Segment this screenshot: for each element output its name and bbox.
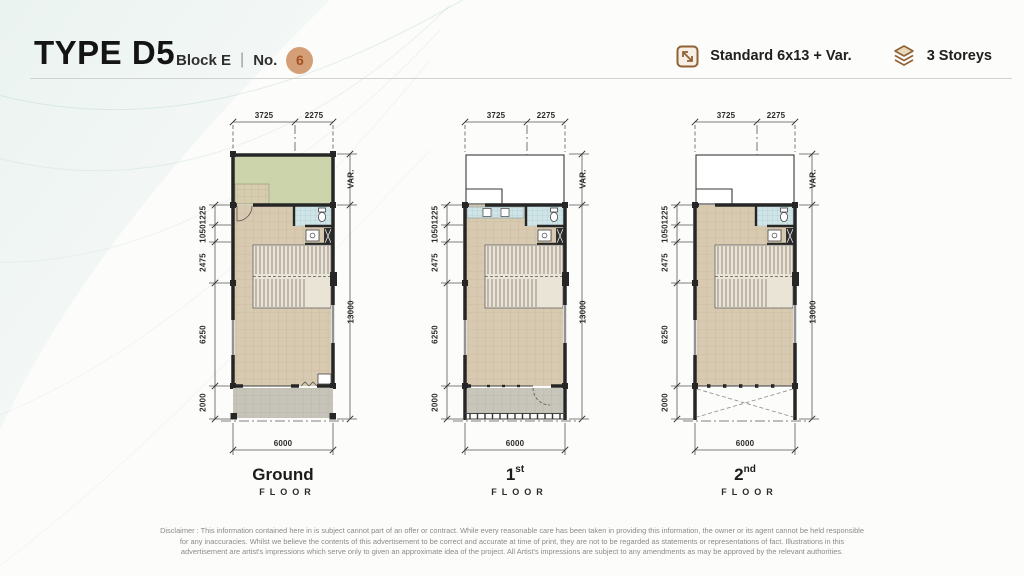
dim-left-1: 1050 (431, 224, 440, 243)
plan-second: 37252275VAR.1300012251050247562502000600… (657, 105, 887, 517)
header-specs: Standard 6x13 + Var. 3 Storeys (676, 44, 992, 68)
dim-bottom: 6000 (506, 439, 525, 448)
floor-label-ground: Ground (195, 465, 371, 485)
dim-right-total: 13000 (347, 300, 356, 324)
dim-var: VAR. (347, 169, 356, 188)
floor-word-second: FLOOR (657, 487, 837, 497)
floor-label-first: 1st (427, 465, 603, 485)
dim-left-4: 2000 (199, 393, 208, 412)
dim-bottom: 6000 (274, 439, 293, 448)
dim-left-4: 2000 (431, 393, 440, 412)
storeys-label: 3 Storeys (927, 48, 992, 64)
dim-var: VAR. (579, 169, 588, 188)
plan-first: 37252275VAR.1300012251050247562502000600… (427, 105, 657, 517)
dim-left-2: 2475 (431, 253, 440, 272)
page-title: TYPE D5 (34, 34, 175, 72)
unit-number-badge: 6 (286, 47, 313, 74)
dim-left-0: 1225 (199, 205, 208, 224)
dim-right-total: 13000 (809, 300, 818, 324)
disclaimer-line: Disclaimer : This information contained … (62, 526, 962, 537)
block-info: Block E | No. 6 (176, 45, 313, 75)
lot-size-icon (676, 45, 699, 68)
spec-label: Standard 6x13 + Var. (710, 48, 851, 64)
storeys-layers-icon (892, 44, 916, 68)
dim-left-3: 6250 (661, 325, 670, 344)
dim-left-1: 1050 (661, 224, 670, 243)
block-label: Block E (176, 52, 231, 69)
floor-plan-drawing-ground: 37252275VAR.1300012251050247562502000600… (195, 105, 425, 461)
disclaimer-line: for any inaccuracies. Whilst we believe … (62, 537, 962, 548)
header-rule (30, 78, 1012, 79)
dim-left-3: 6250 (199, 325, 208, 344)
unit-no-label: No. (253, 52, 277, 69)
dim-left-4: 2000 (661, 393, 670, 412)
divider: | (240, 51, 244, 69)
dim-top-left: 3725 (717, 111, 736, 120)
disclaimer: Disclaimer : This information contained … (62, 526, 962, 558)
floor-word-ground: FLOOR (195, 487, 375, 497)
header: TYPE D5 Block E | No. 6 Standard 6x13 + … (0, 0, 1024, 78)
dim-left-0: 1225 (661, 205, 670, 224)
floor-plan-drawing-second: 37252275VAR.1300012251050247562502000600… (657, 105, 887, 461)
dim-top-right: 2275 (305, 111, 324, 120)
disclaimer-line: advertisement are artist's impressions w… (62, 547, 962, 558)
dim-top-right: 2275 (767, 111, 786, 120)
dim-left-3: 6250 (431, 325, 440, 344)
dim-var: VAR. (809, 169, 818, 188)
dim-top-left: 3725 (255, 111, 274, 120)
plan-ground: 37252275VAR.1300012251050247562502000600… (195, 105, 425, 517)
dim-bottom: 6000 (736, 439, 755, 448)
dim-top-left: 3725 (487, 111, 506, 120)
dim-top-right: 2275 (537, 111, 556, 120)
dim-right-total: 13000 (579, 300, 588, 324)
dim-left-1: 1050 (199, 224, 208, 243)
dim-left-0: 1225 (431, 205, 440, 224)
floor-word-first: FLOOR (427, 487, 607, 497)
floor-label-second: 2nd (657, 465, 833, 485)
floor-plan-drawing-first: 37252275VAR.1300012251050247562502000600… (427, 105, 657, 461)
dim-left-2: 2475 (661, 253, 670, 272)
dim-left-2: 2475 (199, 253, 208, 272)
